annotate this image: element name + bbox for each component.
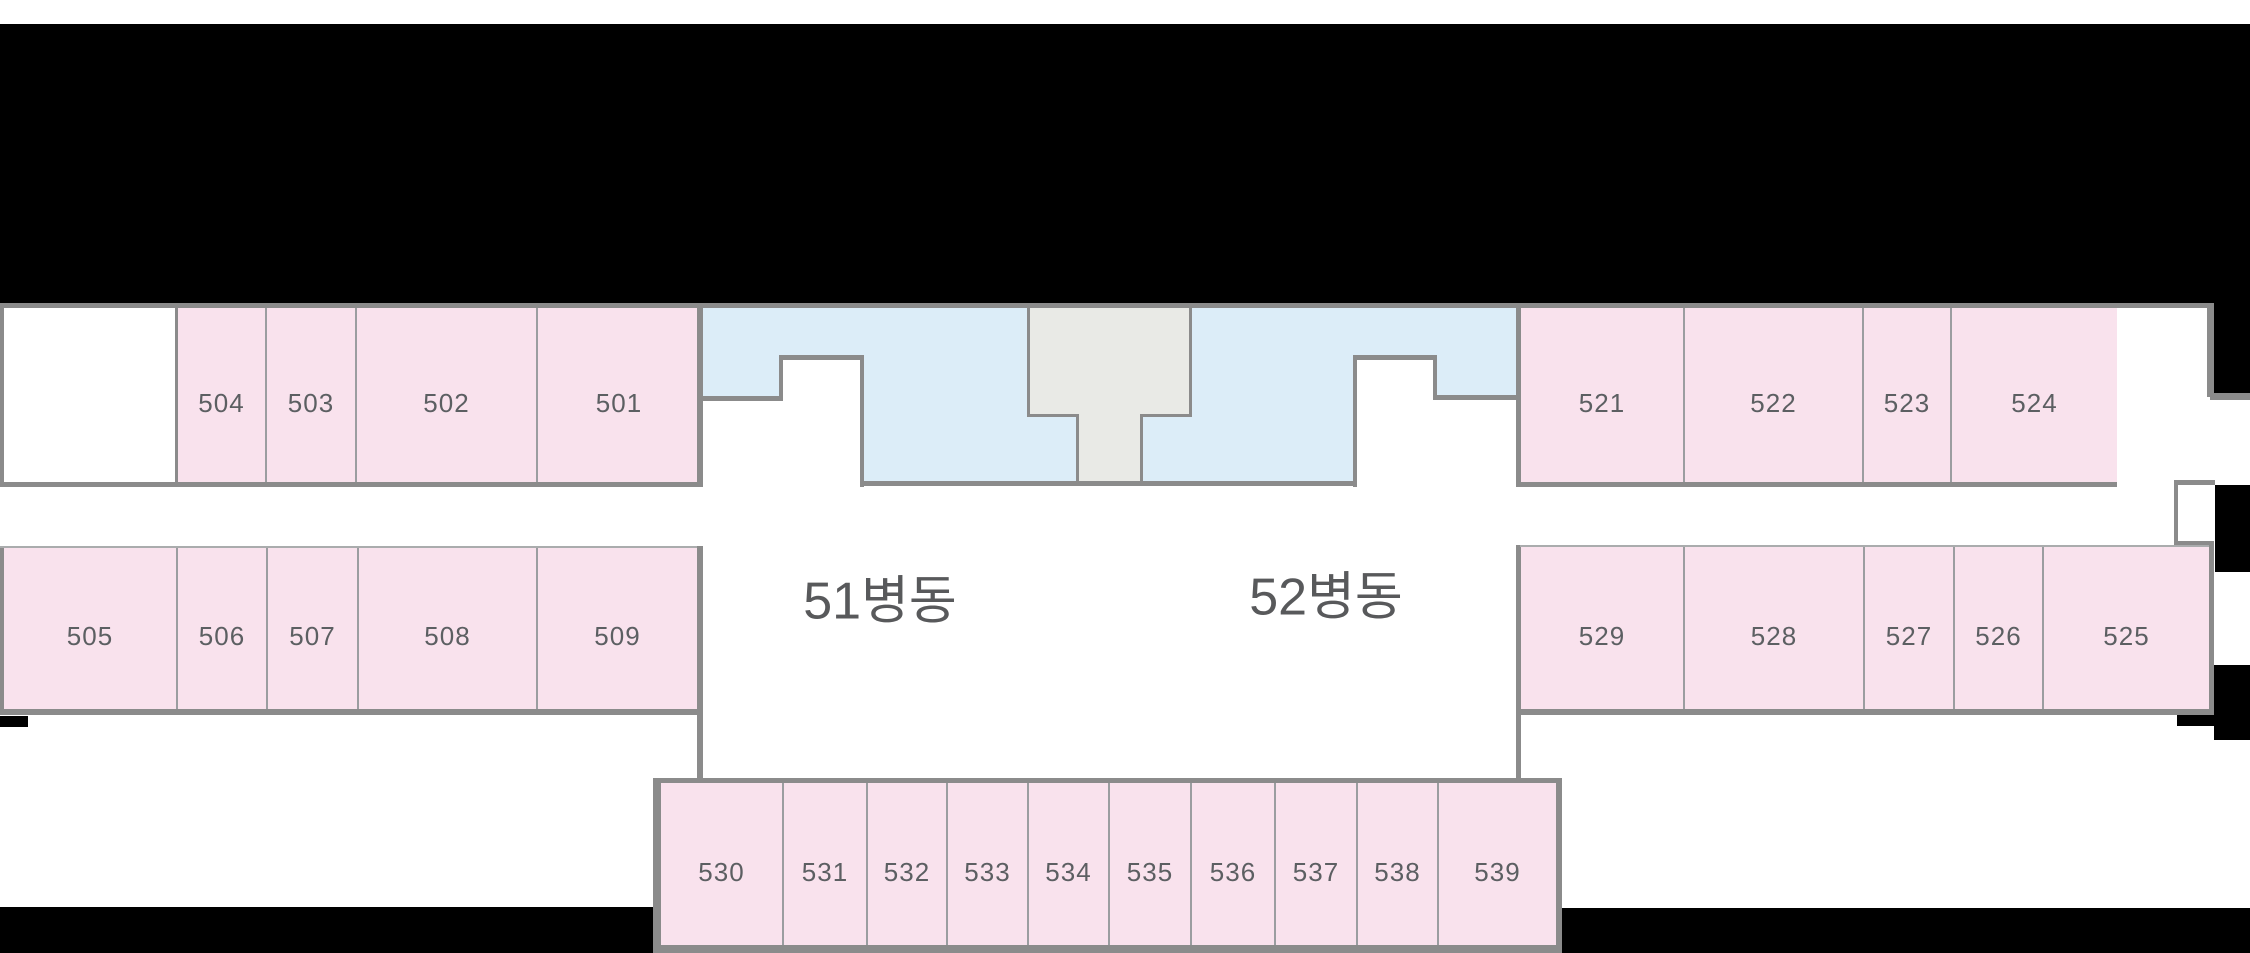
room-531: 531 <box>782 783 866 945</box>
ward-label-52: 52병동 <box>1249 555 1403 630</box>
room-number: 502 <box>423 388 469 419</box>
room-number: 539 <box>1474 857 1520 888</box>
room-number: 523 <box>1884 388 1930 419</box>
room-504: 504 <box>178 308 265 482</box>
room-number: 524 <box>2011 388 2057 419</box>
room-number: 529 <box>1579 621 1625 652</box>
room-number: 505 <box>67 621 113 652</box>
room-506: 506 <box>176 548 266 709</box>
room-number: 504 <box>198 388 244 419</box>
room-number: 503 <box>288 388 334 419</box>
black-band-bottom-left <box>0 907 653 953</box>
room-507: 507 <box>266 548 357 709</box>
room-521: 521 <box>1521 308 1683 482</box>
room-501: 501 <box>536 308 700 482</box>
room-number: 536 <box>1210 857 1256 888</box>
room-505: 505 <box>4 548 176 709</box>
room-530: 530 <box>661 783 782 945</box>
wall-lobby-left <box>697 303 703 487</box>
wall-top-main <box>0 303 2214 308</box>
wall-midleft-left <box>0 546 4 715</box>
room-508: 508 <box>357 548 536 709</box>
wall-midright-bottom <box>1516 709 2214 715</box>
room-number: 533 <box>964 857 1010 888</box>
wall-right-step-vertical <box>2207 303 2214 397</box>
lobby-cutout-right <box>1437 395 1516 481</box>
wall-notch2-right <box>1433 355 1437 400</box>
wall-right-notch-top <box>2174 480 2215 485</box>
room-509: 509 <box>536 548 697 709</box>
room-534: 534 <box>1027 783 1108 945</box>
wall-bottomblock-bottom <box>653 945 1562 953</box>
room-group-top-left: 504503502501 <box>178 308 700 482</box>
room-number: 528 <box>1751 621 1797 652</box>
black-edge-right-3 <box>2177 715 2214 726</box>
wall-midleft-right-connector <box>697 546 703 783</box>
room-535: 535 <box>1108 783 1190 945</box>
wall-topleft-block-left <box>175 308 178 483</box>
room-number: 532 <box>884 857 930 888</box>
room-524: 524 <box>1950 308 2117 482</box>
lobby-notch-right <box>1353 357 1437 481</box>
room-538: 538 <box>1356 783 1437 945</box>
room-number: 531 <box>802 857 848 888</box>
wall-notch1-top <box>779 355 864 360</box>
black-edge-left-sliver <box>0 716 28 727</box>
wall-notch2-left <box>1353 355 1357 487</box>
wall-band-bottom-right <box>1516 482 2117 487</box>
room-number: 501 <box>596 388 642 419</box>
wall-lobby-bottom <box>860 481 1357 486</box>
room-503: 503 <box>265 308 355 482</box>
room-532: 532 <box>866 783 946 945</box>
wall-left-upper <box>0 303 4 487</box>
room-number: 509 <box>594 621 640 652</box>
room-number: 525 <box>2103 621 2149 652</box>
wall-band-bottom-left <box>0 482 703 487</box>
room-number: 535 <box>1127 857 1173 888</box>
room-number: 508 <box>424 621 470 652</box>
core-block-top <box>1027 308 1192 417</box>
wall-bottomblock-right <box>1556 778 1562 953</box>
room-527: 527 <box>1863 547 1953 709</box>
room-number: 534 <box>1045 857 1091 888</box>
room-502: 502 <box>355 308 536 482</box>
room-537: 537 <box>1274 783 1356 945</box>
black-edge-top-right <box>2214 303 2250 393</box>
room-536: 536 <box>1190 783 1274 945</box>
room-526: 526 <box>1953 547 2042 709</box>
wall-bottomblock-top <box>653 778 1562 783</box>
wall-notch1-right <box>860 355 864 487</box>
header-background <box>0 24 2250 303</box>
room-number: 521 <box>1579 388 1625 419</box>
wall-midleft-top-thin <box>0 546 700 548</box>
room-number: 530 <box>698 857 744 888</box>
room-number: 538 <box>1374 857 1420 888</box>
room-number: 526 <box>1975 621 2021 652</box>
wall-lobby-d-bottom <box>1437 395 1516 400</box>
room-group-mid-left: 505506507508509 <box>4 548 697 709</box>
room-number: 522 <box>1750 388 1796 419</box>
room-group-mid-right: 529528527526525 <box>1521 547 2209 709</box>
wall-midright-top-thin <box>1520 545 2209 547</box>
lobby-notch-left <box>779 357 864 481</box>
ward-label-51: 51병동 <box>803 559 957 634</box>
lobby-cutout-left <box>703 396 779 481</box>
wall-midright-left-connector <box>1516 545 1521 783</box>
black-band-bottom-right <box>1562 908 2250 953</box>
room-522: 522 <box>1683 308 1862 482</box>
room-group-top-right: 521522523524 <box>1521 308 2117 482</box>
wall-right-notch-left <box>2174 480 2178 546</box>
room-group-bottom: 530531532533534535536537538539 <box>661 783 1556 945</box>
room-539: 539 <box>1437 783 1556 945</box>
wall-midright-right <box>2209 545 2214 715</box>
black-edge-right-2 <box>2214 665 2250 740</box>
wall-bottomblock-left <box>653 778 661 953</box>
wall-lobby-a-bottom <box>700 396 779 401</box>
room-523: 523 <box>1862 308 1950 482</box>
wall-notch1-left <box>779 355 783 401</box>
wall-right-step-horizontal <box>2210 393 2250 400</box>
wall-midleft-bottom <box>0 709 703 715</box>
floor-plan-page: 본관 5층 입원병동 안내 51병동: 소화기내과, 혈액종양내과 병동 52병… <box>0 0 2250 953</box>
room-533: 533 <box>946 783 1027 945</box>
black-edge-right-1 <box>2215 485 2250 572</box>
room-529: 529 <box>1521 547 1683 709</box>
room-number: 507 <box>289 621 335 652</box>
room-528: 528 <box>1683 547 1863 709</box>
room-525: 525 <box>2042 547 2209 709</box>
room-number: 537 <box>1293 857 1339 888</box>
room-number: 506 <box>199 621 245 652</box>
wall-notch2-top <box>1353 355 1437 360</box>
core-block-stem <box>1076 414 1143 481</box>
room-number: 527 <box>1886 621 1932 652</box>
wall-band-right-inner <box>1516 303 1521 487</box>
